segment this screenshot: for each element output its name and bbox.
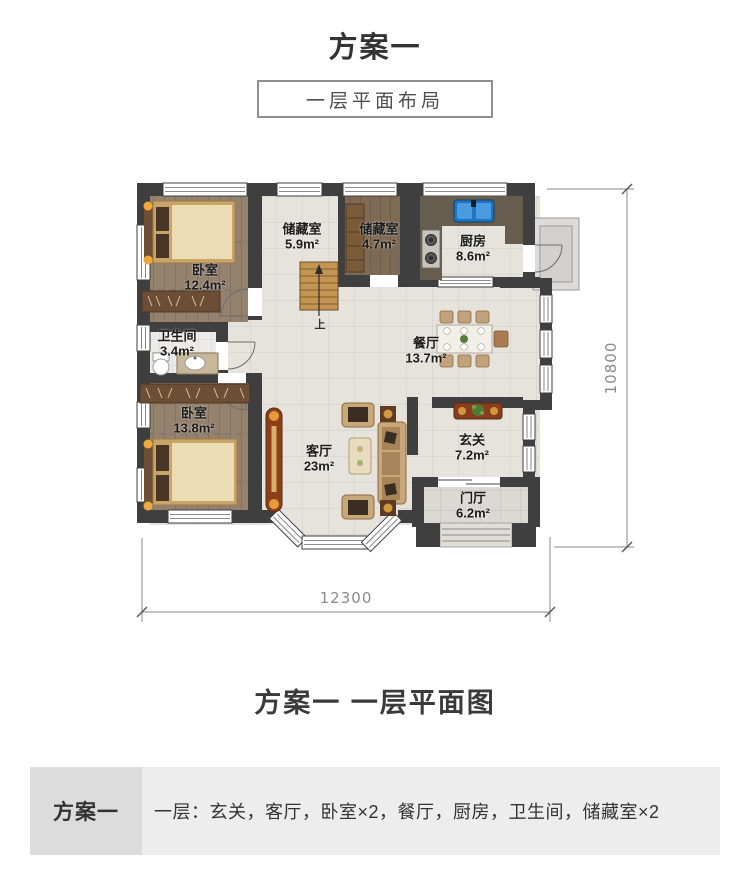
stairs xyxy=(300,262,338,316)
room-area: 4.7m² xyxy=(359,237,398,252)
room-name: 客厅 xyxy=(304,444,334,459)
room-label-foyer: 门厅 6.2m² xyxy=(456,491,490,522)
subtitle-box: 一层平面布局 xyxy=(257,80,493,118)
room-area: 23m² xyxy=(304,459,334,474)
room-label-dining: 餐厅 13.7m² xyxy=(405,336,446,367)
room-label-living: 客厅 23m² xyxy=(304,444,334,475)
room-label-storage-1: 储藏室 5.9m² xyxy=(282,222,321,253)
entry-steps xyxy=(440,523,512,547)
room-name: 卫生间 xyxy=(157,329,196,344)
room-name: 卧室 xyxy=(184,263,225,278)
room-name: 储藏室 xyxy=(282,222,321,237)
room-area: 13.7m² xyxy=(405,351,446,366)
room-label-bedroom-1: 卧室 12.4m² xyxy=(184,263,225,294)
page-title: 方案一 xyxy=(0,24,750,66)
room-name: 卧室 xyxy=(173,406,214,421)
plan-caption: 方案一 一层平面图 xyxy=(0,681,750,720)
room-area: 13.8m² xyxy=(173,421,214,436)
room-name: 储藏室 xyxy=(359,222,398,237)
page: 方案一 一层平面布局 xyxy=(0,0,750,870)
dim-height-label: 10800 xyxy=(602,342,620,395)
room-label-bathroom: 卫生间 3.4m² xyxy=(157,329,196,360)
room-area: 12.4m² xyxy=(184,278,225,293)
room-area: 6.2m² xyxy=(456,506,490,521)
room-area: 3.4m² xyxy=(157,344,196,359)
summary-rooms-list: 一层：玄关，客厅，卧室×2，餐厅，厨房，卫生间，储藏室×2 xyxy=(142,767,720,855)
room-label-kitchen: 厨房 8.6m² xyxy=(456,234,490,265)
summary-plan-label: 方案一 xyxy=(30,767,142,855)
room-name: 厨房 xyxy=(456,234,490,249)
room-name: 门厅 xyxy=(456,491,490,506)
room-label-entrance: 玄关 7.2m² xyxy=(455,433,489,464)
entry-console xyxy=(454,403,502,419)
dim-width-label: 12300 xyxy=(320,589,373,607)
room-area: 8.6m² xyxy=(456,249,490,264)
room-area: 5.9m² xyxy=(282,237,321,252)
stair-up-label: 上 xyxy=(315,317,326,331)
room-label-storage-2: 储藏室 4.7m² xyxy=(359,222,398,253)
room-name: 餐厅 xyxy=(405,336,446,351)
bedroom2-furniture xyxy=(140,384,250,511)
summary-bar: 方案一 一层：玄关，客厅，卧室×2，餐厅，厨房，卫生间，储藏室×2 xyxy=(30,767,720,855)
room-area: 7.2m² xyxy=(455,448,489,463)
floorplan: 上 xyxy=(120,170,640,630)
room-name: 玄关 xyxy=(455,433,489,448)
room-label-bedroom-2: 卧室 13.8m² xyxy=(173,406,214,437)
